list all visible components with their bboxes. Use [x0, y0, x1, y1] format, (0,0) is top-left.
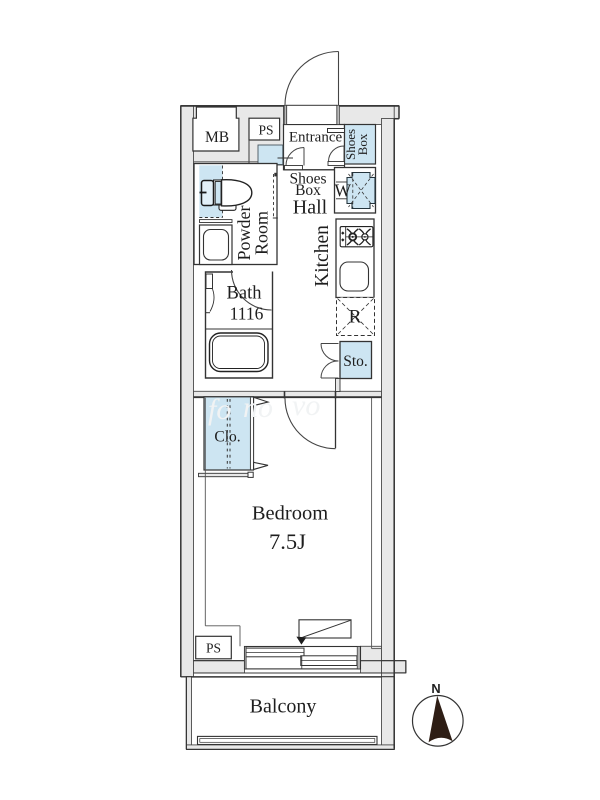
svg-text:Box: Box [355, 133, 370, 155]
svg-text:Bath: Bath [227, 284, 262, 304]
svg-text:Room: Room [252, 211, 272, 255]
svg-text:Sto.: Sto. [343, 353, 368, 370]
svg-text:Hall: Hall [293, 197, 328, 219]
svg-text:Kitchen: Kitchen [312, 225, 333, 287]
svg-text:Clo.: Clo. [214, 429, 240, 446]
svg-text:W: W [335, 180, 352, 200]
svg-text:Entrance: Entrance [289, 130, 343, 146]
svg-text:MB: MB [205, 129, 229, 146]
svg-text:1116: 1116 [230, 304, 264, 324]
svg-text:no: no [243, 391, 273, 424]
svg-text:Bedroom: Bedroom [252, 503, 328, 525]
svg-text:Balcony: Balcony [250, 696, 317, 718]
svg-text:7.5J: 7.5J [269, 529, 306, 554]
svg-text:PS: PS [258, 123, 273, 138]
svg-text:vo: vo [292, 389, 320, 422]
svg-text:fo: fo [208, 393, 231, 426]
svg-text:R: R [349, 307, 362, 328]
svg-text:N: N [431, 681, 440, 696]
svg-text:PS: PS [206, 641, 221, 656]
